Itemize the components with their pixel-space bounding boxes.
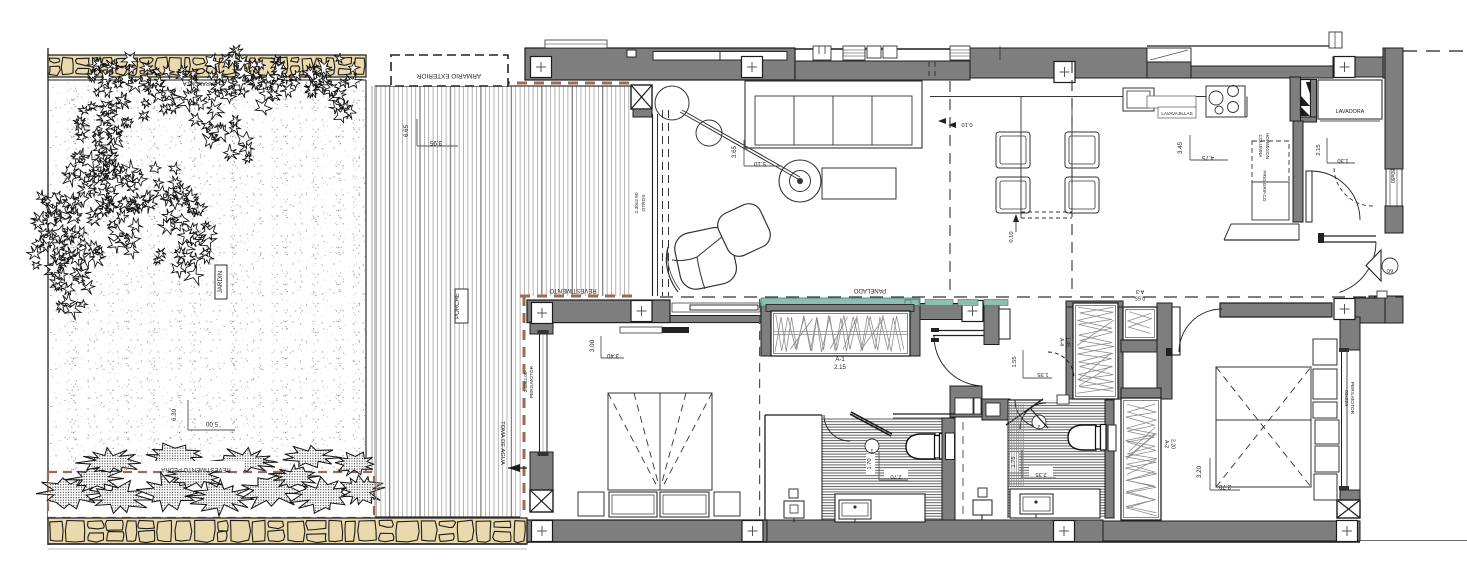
svg-text:2.35: 2.35 [1035,471,1046,477]
svg-text:3.40: 3.40 [606,352,619,359]
svg-text:6.30: 6.30 [171,408,178,421]
svg-text:5.10: 5.10 [753,160,766,167]
svg-text:OTROS: OTROS [641,194,647,211]
svg-text:JARDIN: JARDIN [217,271,224,293]
svg-text:HORMIGON: HORMIGON [1265,133,1270,159]
svg-text:0.10: 0.10 [1009,231,1015,242]
svg-text:LAVADORA: LAVADORA [1336,109,1365,115]
svg-text:5.00: 5.00 [205,420,218,427]
svg-text:BARANDILLA: BARANDILLA [183,80,218,86]
svg-text:0.10: 0.10 [961,121,972,127]
svg-text:2.15: 2.15 [834,365,846,371]
svg-text:3.65: 3.65 [731,145,738,158]
svg-text:1: 1 [870,447,873,453]
svg-text:PERS.MOTOR: PERS.MOTOR [529,365,535,398]
svg-text:A-4: A-4 [1058,338,1064,346]
svg-text:3.45: 3.45 [1177,141,1184,154]
svg-text:2.20: 2.20 [1170,439,1176,449]
svg-text:2: 2 [1037,423,1040,429]
svg-text:A-1: A-1 [835,357,845,363]
svg-text:1.35: 1.35 [1037,371,1048,377]
svg-text:COLUMNA: COLUMNA [1258,135,1263,159]
svg-text:4.75: 4.75 [1201,154,1214,161]
svg-text:3.95: 3.95 [429,139,442,146]
svg-text:0.55: 0.55 [1135,295,1146,301]
svg-text:LAVAVAJILLAS: LAVAVAJILLAS [1161,111,1192,116]
svg-text:3.20: 3.20 [1196,465,1203,478]
svg-text:6.65: 6.65 [403,124,410,137]
svg-text:ARMARIO EXTERIOR: ARMARIO EXTERIOR [416,72,481,79]
svg-text:PORCHE: PORCHE [455,293,461,319]
svg-text:TOMA DE AGUA: TOMA DE AGUA [499,421,505,465]
svg-text:80x220: 80x220 [1343,390,1349,406]
svg-text:1.70: 1.70 [867,458,873,469]
svg-text:REVESTIMENTO PEDRA: REVESTIMENTO PEDRA [161,466,231,472]
svg-text:A-2: A-2 [1163,440,1169,448]
svg-text:3.00: 3.00 [589,339,596,352]
svg-text:80x80: 80x80 [1389,169,1395,183]
svg-text:2.70: 2.70 [890,473,901,479]
svg-text:1.30: 1.30 [1337,157,1348,163]
svg-text:REVESTIMENTO: REVESTIMENTO [549,287,597,293]
svg-text:60: 60 [1387,267,1393,273]
svg-text:1.55: 1.55 [1012,356,1018,367]
svg-text:2.15: 2.15 [1316,144,1322,155]
svg-text:2.10x2.00: 2.10x2.00 [523,371,529,392]
svg-text:PERS.MOTOR: PERS.MOTOR [1349,382,1355,415]
svg-text:A-3: A-3 [1136,288,1144,294]
svg-text:2.70: 2.70 [1218,483,1231,490]
svg-text:PANELADO: PANELADO [854,287,887,293]
svg-text:FRIG.GRIF.CO: FRIG.GRIF.CO [1262,171,1267,202]
svg-text:2.30x2.90: 2.30x2.90 [634,192,640,213]
svg-text:1.45: 1.45 [1065,337,1071,347]
